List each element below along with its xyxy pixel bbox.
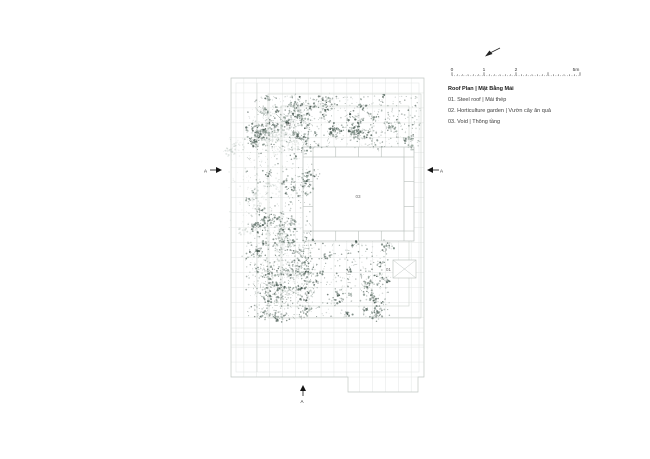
steel-roof-label: 01 [386, 267, 392, 272]
section-marker-right: A [427, 167, 443, 174]
section-marker-bottom: A [300, 385, 306, 404]
section-marker-bottom-label: A [301, 399, 304, 404]
legend-item-steel-roof: 01. Steel roof | Mái thép [448, 95, 551, 106]
drawing-sheet: 03 02 01 A A A 0 1 2 5m R [0, 0, 650, 459]
garden-label: 02 [286, 122, 292, 127]
void-label: 03 [355, 194, 361, 199]
scale-label-1: 1 [483, 67, 486, 73]
legend-item-garden: 02. Horticulture garden | Vườn cây ăn qu… [448, 106, 551, 117]
steel-panel-xbox [393, 260, 416, 278]
title-block: Roof Plan | Mặt Bằng Mái 01. Steel roof … [448, 84, 551, 128]
section-marker-left-label: A [204, 169, 207, 174]
legend-item-void: 03. Void | Thông tầng [448, 117, 551, 128]
section-marker-left: A [204, 167, 222, 174]
scale-label-0: 0 [451, 67, 454, 73]
north-arrow-icon [485, 48, 500, 57]
scale-label-5m: 5m [573, 67, 580, 73]
section-marker-right-label: A [440, 169, 443, 174]
scale-label-2: 2 [515, 67, 518, 73]
roof-plan-drawing: 03 02 01 A A A 0 1 2 5m [0, 0, 650, 459]
drawing-title: Roof Plan | Mặt Bằng Mái [448, 84, 551, 95]
